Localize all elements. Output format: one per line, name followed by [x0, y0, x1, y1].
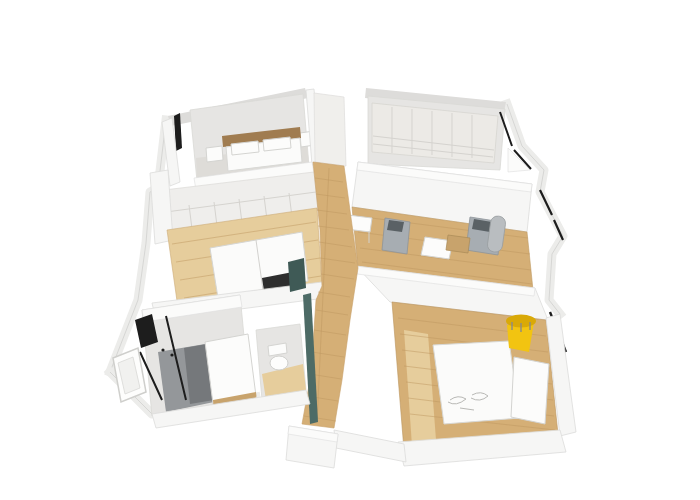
window-frames-right	[540, 190, 563, 240]
pillow-right	[263, 137, 291, 151]
toilet-bowl	[270, 356, 288, 370]
bed-3	[433, 341, 520, 424]
armchair-back-cushion	[387, 220, 404, 232]
floorplan-3d-render	[0, 0, 700, 500]
wood-cabinet	[446, 235, 470, 253]
south-wall-band-center	[334, 430, 406, 462]
room-bedroom-3	[392, 302, 576, 466]
pillow-left	[231, 141, 259, 155]
floorplan-canvas	[0, 0, 700, 500]
armchair-1	[382, 218, 410, 254]
nightstand-left	[206, 146, 223, 162]
teal-cabinet	[288, 258, 306, 292]
shower-fixture-2	[170, 353, 173, 356]
dresser-white	[511, 357, 549, 424]
shower-fixture-1	[161, 348, 164, 351]
corridor-top	[314, 93, 346, 166]
